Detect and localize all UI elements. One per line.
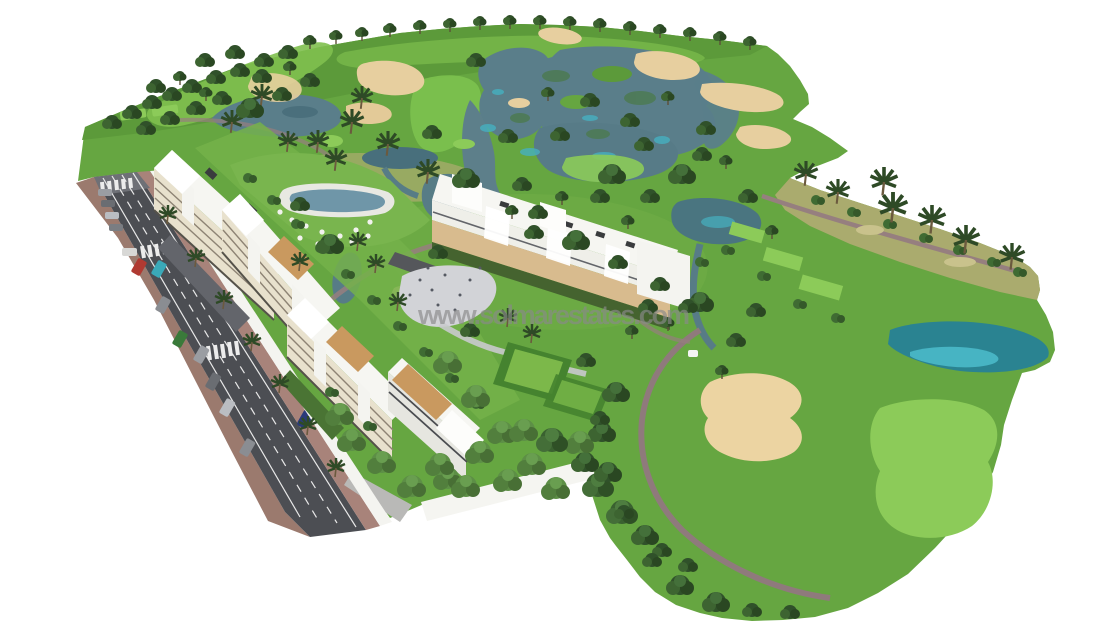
svg-text:www.solmarestates.com: www.solmarestates.com — [417, 300, 690, 330]
